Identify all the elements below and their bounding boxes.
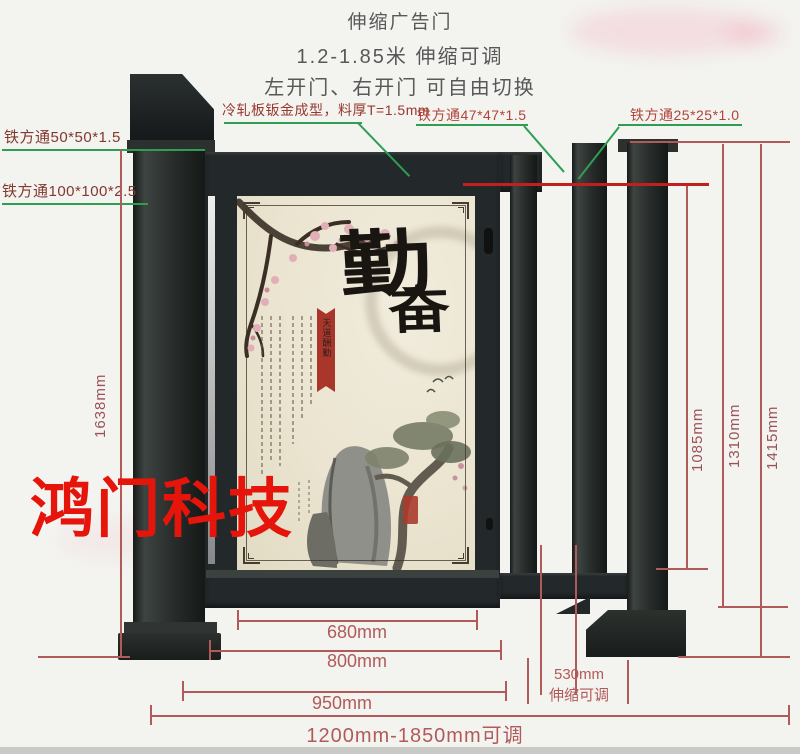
extension-slat-outer	[572, 143, 607, 575]
dim-label-800: 800mm	[267, 651, 447, 672]
dim-tick-top-right	[630, 141, 790, 143]
dim-tick-1085-bottom	[656, 568, 708, 570]
bottom-rail-face	[206, 570, 499, 578]
dim-tick-total-right	[788, 705, 790, 725]
dim-line-1638	[120, 150, 122, 658]
dim-line-top-reference	[463, 183, 709, 186]
extension-rail-wedge	[556, 597, 590, 614]
right-pillar	[627, 143, 668, 657]
product-diagram-canvas: 伸缩广告门 1.2-1.85米 伸缩可调 左开门、右开门 可自由切换	[0, 0, 800, 754]
dim-label-1415: 1415mm	[764, 350, 781, 470]
bottom-gray-strip	[0, 747, 800, 754]
dim-line-1415	[760, 144, 762, 657]
right-pillar-base	[586, 610, 686, 657]
title-line-range: 1.2-1.85米 伸缩可调	[0, 40, 800, 69]
dim-label-530: 530mm	[536, 666, 622, 683]
dim-tick-1310-bottom	[718, 606, 788, 608]
callout-square-tube-100: 铁方通100*100*2.5	[2, 180, 137, 201]
dim-tick-680-right	[476, 610, 478, 630]
dim-label-total-width: 1200mm-1850mm可调	[250, 719, 580, 748]
left-pillar-base	[118, 633, 221, 660]
callout-square-tube-47: 铁方通47*47*1.5	[417, 105, 527, 125]
dim-label-1310: 1310mm	[726, 348, 743, 468]
poster-corner-ornament	[452, 547, 469, 564]
dim-label-530-note: 伸缩可调	[536, 684, 622, 705]
door-lock-handle	[484, 228, 493, 254]
dim-line-1085	[686, 186, 688, 570]
dim-line-total-width	[150, 715, 790, 717]
dim-line-1310	[722, 144, 724, 607]
title-line-switch: 左开门、右开门 可自由切换	[0, 71, 800, 100]
dim-tick-total-left	[150, 705, 152, 725]
dim-tick-800-left	[209, 640, 211, 660]
leader-line-tube50	[2, 149, 205, 151]
dim-tick-530-right	[627, 660, 629, 704]
dim-tick-680-left	[237, 610, 239, 630]
callout-square-tube-50: 铁方通50*50*1.5	[4, 126, 121, 147]
dim-tick-530-left	[527, 658, 529, 704]
leader-line-tube100	[2, 203, 148, 205]
dim-tick-1638-bottom	[38, 656, 130, 658]
dim-tick-950-right	[505, 681, 507, 701]
dim-tick-1415-bottom	[678, 656, 790, 658]
leader-line-panel	[224, 122, 362, 124]
left-pillar	[133, 150, 205, 628]
callout-square-tube-25: 铁方通25*25*1.0	[630, 105, 740, 125]
dim-label-680: 680mm	[267, 622, 447, 643]
dim-label-1638: 1638mm	[92, 308, 109, 438]
extension-bottom-rail	[500, 573, 628, 599]
callout-cold-rolled-panel: 冷轧板钣金成型，料厚T=1.5mm	[222, 100, 430, 120]
extension-slat-inner	[510, 155, 537, 575]
title-line-product: 伸缩广告门	[0, 7, 800, 34]
poster-corner-ornament	[243, 202, 260, 219]
dim-tick-800-right	[500, 640, 502, 660]
dim-label-950: 950mm	[252, 693, 432, 714]
dim-tick-950-left	[182, 681, 184, 701]
door-hinge-dot	[486, 518, 493, 530]
poster-corner-ornament	[452, 202, 469, 219]
dim-label-1085: 1085mm	[689, 352, 706, 472]
watermark-text: 鸿门科技	[30, 458, 294, 550]
